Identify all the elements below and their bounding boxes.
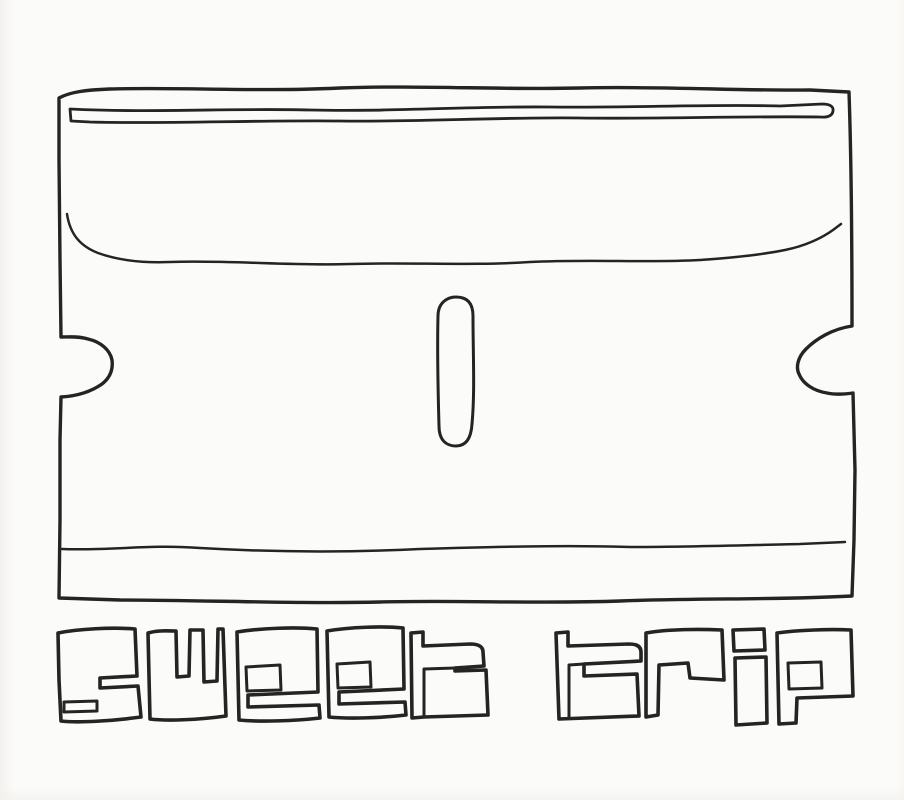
album-art: sweet trip bbox=[0, 0, 904, 800]
letter-e1 bbox=[237, 628, 320, 721]
letter-s bbox=[58, 628, 141, 722]
blade-shoulder-line bbox=[67, 214, 841, 264]
blade-edge-line bbox=[62, 542, 845, 552]
letter-i-stem bbox=[735, 657, 767, 725]
letter-r bbox=[646, 629, 724, 717]
letter-e2-hole bbox=[337, 662, 371, 688]
razor-blade-drawing: sweet trip bbox=[0, 0, 904, 800]
letter-s-slot bbox=[64, 701, 97, 712]
letter-p-hole bbox=[788, 662, 822, 689]
lettering-sweet-trip bbox=[58, 627, 853, 725]
letter-t2-stem-line bbox=[569, 664, 584, 718]
blade-outline bbox=[59, 87, 855, 603]
letter-i-dot bbox=[733, 629, 765, 651]
letter-w bbox=[148, 629, 226, 720]
blade-center-slot bbox=[438, 297, 474, 446]
letter-e1-hole bbox=[246, 665, 281, 691]
letter-t1-stem-line bbox=[424, 668, 455, 717]
word-sweet bbox=[58, 627, 488, 722]
blade-spine-band bbox=[70, 104, 833, 123]
word-trip bbox=[556, 629, 853, 725]
razor-blade-icon bbox=[59, 87, 855, 603]
